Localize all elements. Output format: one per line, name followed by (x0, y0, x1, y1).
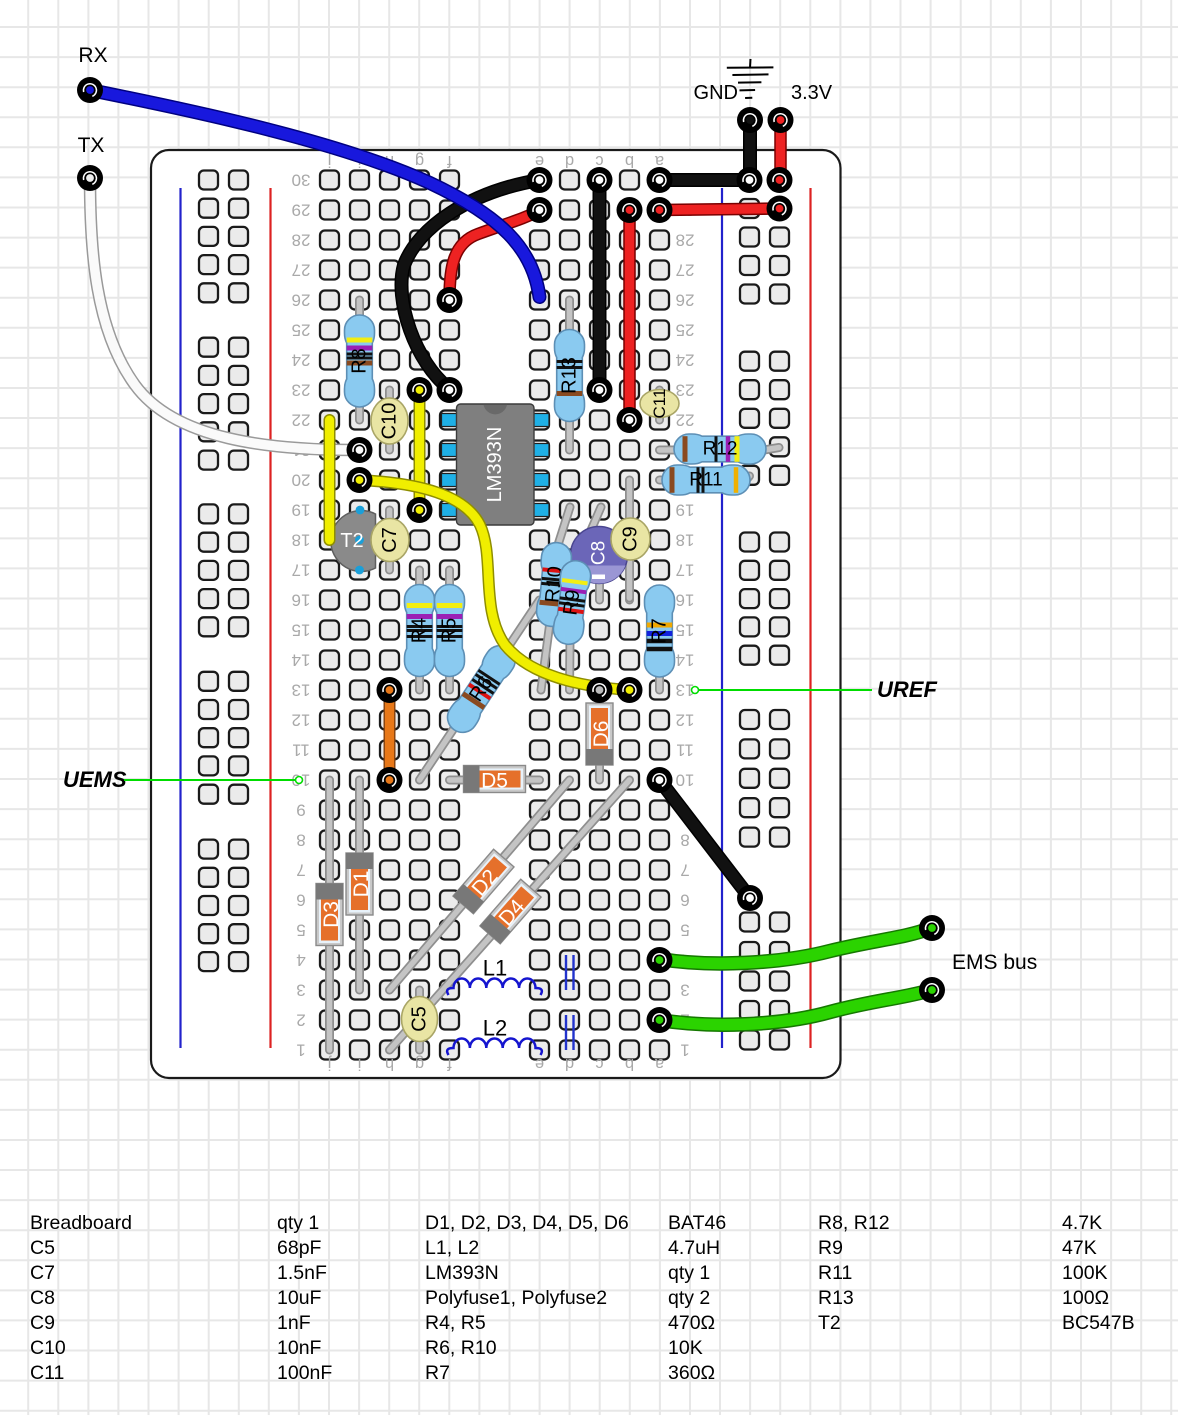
svg-text:b: b (625, 152, 634, 170)
svg-text:L1: L1 (483, 956, 507, 981)
svg-text:19: 19 (676, 501, 695, 520)
svg-text:12: 12 (676, 711, 695, 730)
svg-text:R8, R12: R8, R12 (818, 1212, 890, 1234)
svg-text:f: f (447, 1055, 452, 1073)
svg-text:e: e (535, 1055, 544, 1073)
svg-text:68pF: 68pF (277, 1237, 322, 1259)
svg-text:D1: D1 (350, 871, 373, 898)
svg-text:LM393N: LM393N (484, 427, 506, 503)
svg-text:TX: TX (78, 134, 105, 157)
svg-text:UREF: UREF (877, 677, 937, 702)
svg-text:C5: C5 (409, 1006, 431, 1032)
svg-text:R4: R4 (409, 618, 431, 644)
svg-text:h: h (385, 1055, 394, 1073)
svg-text:C9: C9 (620, 526, 642, 552)
svg-text:4.7K: 4.7K (1062, 1212, 1102, 1234)
svg-text:C5: C5 (30, 1237, 55, 1259)
svg-text:10K: 10K (668, 1337, 703, 1359)
svg-text:1.5nF: 1.5nF (277, 1262, 327, 1284)
svg-text:g: g (415, 152, 424, 170)
svg-text:15: 15 (292, 621, 311, 640)
svg-text:20: 20 (292, 471, 311, 490)
svg-text:15: 15 (676, 621, 695, 640)
svg-text:28: 28 (676, 231, 695, 250)
svg-text:5: 5 (680, 921, 689, 940)
svg-text:100nF: 100nF (277, 1362, 332, 1384)
svg-text:1: 1 (680, 1041, 689, 1060)
svg-text:3: 3 (296, 981, 305, 1000)
svg-text:14: 14 (292, 651, 311, 670)
svg-text:2: 2 (296, 1011, 305, 1030)
svg-text:R5: R5 (439, 618, 461, 644)
svg-text:LM393N: LM393N (425, 1262, 499, 1284)
svg-text:C10: C10 (30, 1337, 66, 1359)
svg-text:R11: R11 (818, 1262, 852, 1284)
svg-text:19: 19 (292, 501, 311, 520)
svg-text:d: d (565, 152, 574, 170)
svg-text:13: 13 (292, 681, 311, 700)
svg-text:100Ω: 100Ω (1062, 1287, 1109, 1309)
svg-text:a: a (654, 1055, 664, 1073)
svg-text:23: 23 (676, 381, 695, 400)
svg-text:d: d (565, 1055, 574, 1073)
svg-text:10: 10 (676, 771, 695, 790)
svg-text:b: b (625, 1055, 634, 1073)
svg-text:4: 4 (296, 951, 305, 970)
svg-text:R7: R7 (649, 618, 671, 644)
svg-text:R7: R7 (425, 1362, 450, 1384)
svg-text:UEMS: UEMS (63, 767, 127, 792)
svg-text:C10: C10 (379, 403, 401, 440)
svg-text:17: 17 (292, 561, 311, 580)
svg-text:7: 7 (296, 861, 305, 880)
svg-text:D6: D6 (590, 721, 613, 748)
svg-text:R11: R11 (689, 470, 722, 491)
svg-text:8: 8 (296, 831, 305, 850)
svg-text:23: 23 (292, 381, 311, 400)
svg-text:8: 8 (680, 831, 689, 850)
svg-text:C8: C8 (30, 1287, 55, 1309)
svg-text:R13: R13 (559, 357, 581, 394)
svg-text:11: 11 (676, 741, 694, 760)
svg-text:29: 29 (292, 201, 311, 220)
svg-text:C9: C9 (30, 1312, 55, 1334)
svg-text:j: j (328, 152, 333, 170)
svg-text:26: 26 (676, 291, 695, 310)
svg-text:10nF: 10nF (277, 1337, 322, 1359)
svg-text:qty 1: qty 1 (668, 1262, 710, 1284)
svg-text:6: 6 (680, 891, 689, 910)
svg-text:C7: C7 (379, 527, 401, 553)
svg-text:7: 7 (680, 861, 689, 880)
svg-text:qty 1: qty 1 (277, 1212, 319, 1234)
svg-text:C11: C11 (650, 389, 669, 419)
svg-text:f: f (447, 152, 452, 170)
svg-text:C8: C8 (589, 541, 610, 565)
svg-text:25: 25 (292, 321, 311, 340)
svg-text:BC547B: BC547B (1062, 1312, 1135, 1334)
svg-text:D3: D3 (320, 901, 343, 928)
svg-text:18: 18 (292, 531, 311, 550)
svg-text:18: 18 (676, 531, 695, 550)
svg-text:g: g (415, 1055, 424, 1073)
svg-text:10uF: 10uF (277, 1287, 322, 1309)
svg-text:Polyfuse1, Polyfuse2: Polyfuse1, Polyfuse2 (425, 1287, 607, 1309)
svg-text:22: 22 (292, 411, 311, 430)
svg-text:1: 1 (296, 1041, 305, 1060)
svg-text:GND: GND (694, 82, 738, 104)
svg-text:Breadboard: Breadboard (30, 1212, 132, 1234)
svg-text:47K: 47K (1062, 1237, 1097, 1259)
svg-text:9: 9 (296, 801, 305, 820)
svg-text:C11: C11 (30, 1362, 64, 1384)
svg-text:360Ω: 360Ω (668, 1362, 715, 1384)
svg-text:30: 30 (292, 171, 311, 190)
svg-text:j: j (328, 1055, 333, 1073)
svg-text:i: i (358, 1055, 362, 1073)
svg-text:L1, L2: L1, L2 (425, 1237, 479, 1259)
svg-text:RX: RX (78, 44, 107, 67)
svg-text:16: 16 (292, 591, 311, 610)
svg-text:27: 27 (676, 261, 695, 280)
svg-text:14: 14 (676, 651, 695, 670)
svg-text:D5: D5 (481, 770, 508, 793)
svg-text:R8: R8 (349, 348, 371, 374)
svg-text:6: 6 (296, 891, 305, 910)
svg-text:28: 28 (292, 231, 311, 250)
svg-text:470Ω: 470Ω (668, 1312, 715, 1334)
svg-text:25: 25 (676, 321, 695, 340)
svg-text:L2: L2 (483, 1016, 507, 1041)
svg-text:5: 5 (296, 921, 305, 940)
svg-text:4.7uH: 4.7uH (668, 1237, 720, 1259)
svg-text:T2: T2 (340, 530, 363, 552)
svg-text:27: 27 (292, 261, 311, 280)
svg-text:24: 24 (676, 351, 695, 370)
svg-text:R13: R13 (818, 1287, 854, 1309)
svg-text:1nF: 1nF (277, 1312, 311, 1334)
svg-text:D1, D2, D3, D4, D5, D6: D1, D2, D3, D4, D5, D6 (425, 1212, 629, 1234)
svg-text:R9: R9 (818, 1237, 843, 1259)
svg-text:12: 12 (292, 711, 311, 730)
svg-text:T2: T2 (818, 1312, 841, 1334)
svg-text:3.3V: 3.3V (791, 82, 833, 104)
svg-text:R9: R9 (559, 588, 584, 616)
svg-text:22: 22 (676, 411, 695, 430)
svg-text:BAT46: BAT46 (668, 1212, 726, 1234)
svg-text:100K: 100K (1062, 1262, 1108, 1284)
svg-text:EMS bus: EMS bus (952, 951, 1037, 974)
svg-text:C7: C7 (30, 1262, 55, 1284)
svg-text:qty 2: qty 2 (668, 1287, 710, 1309)
svg-text:16: 16 (676, 591, 695, 610)
svg-text:17: 17 (676, 561, 695, 580)
svg-text:26: 26 (292, 291, 311, 310)
svg-text:11: 11 (292, 741, 310, 760)
svg-text:R12: R12 (703, 439, 738, 460)
svg-text:24: 24 (292, 351, 311, 370)
svg-text:c: c (595, 1055, 603, 1073)
svg-text:R4, R5: R4, R5 (425, 1312, 486, 1334)
svg-text:3: 3 (680, 981, 689, 1000)
svg-text:R6, R10: R6, R10 (425, 1337, 497, 1359)
